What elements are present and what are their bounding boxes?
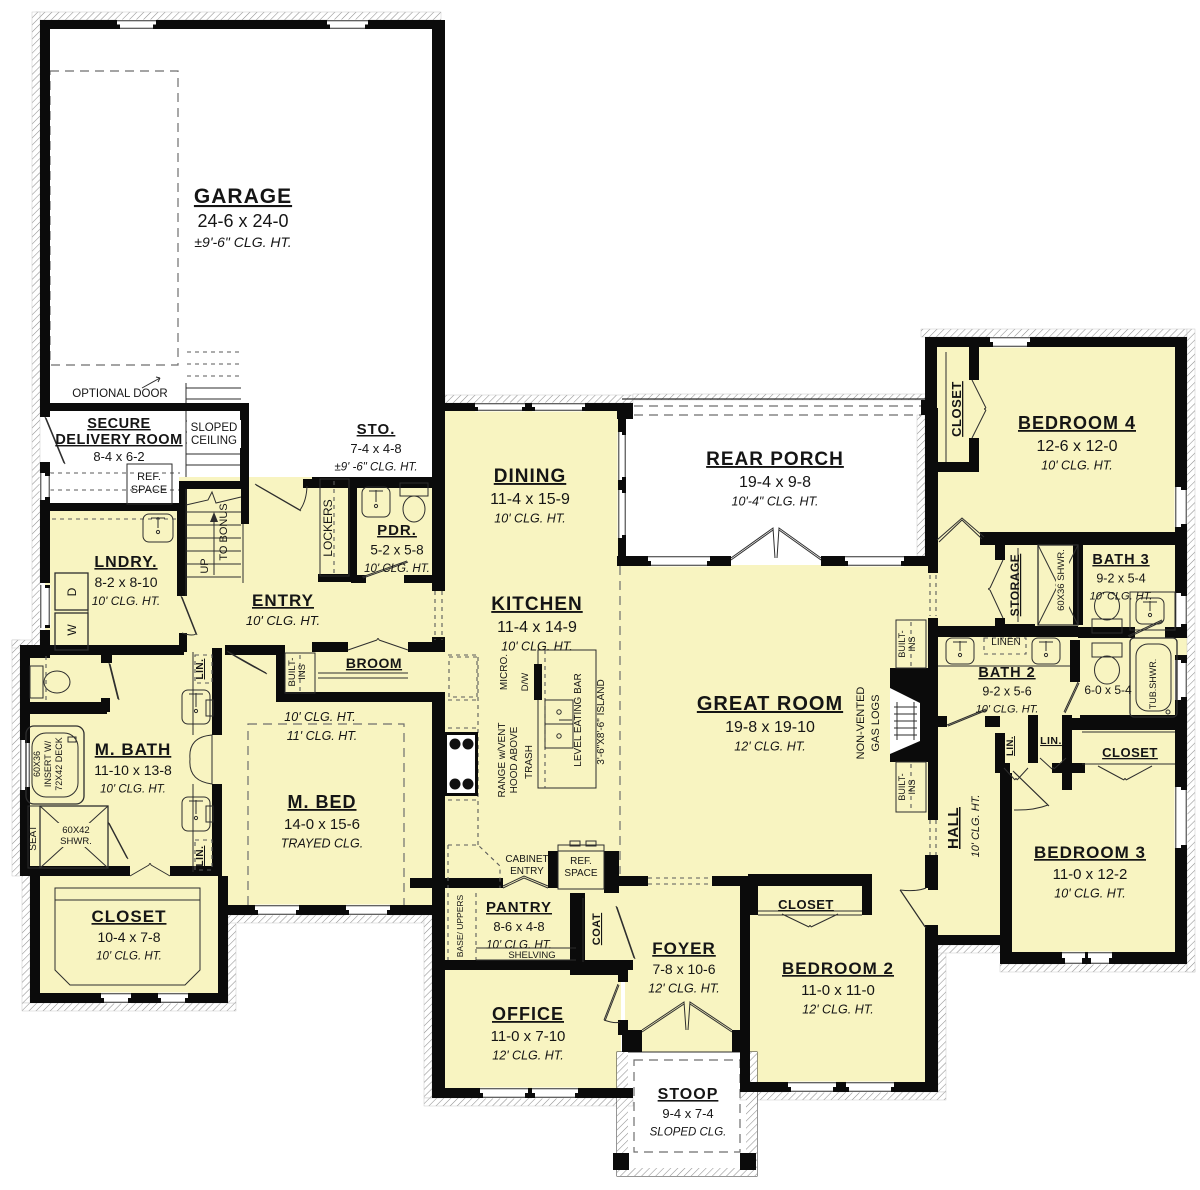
svg-text:±9' -6" CLG. HT.: ±9' -6" CLG. HT. [334,462,417,474]
svg-text:INSERT W/: INSERT W/ [43,740,53,787]
svg-text:BUILT-: BUILT- [897,630,907,657]
svg-text:7-8 x 10-6: 7-8 x 10-6 [652,961,715,977]
svg-text:7-4 x 4-8: 7-4 x 4-8 [350,441,401,456]
svg-text:SLOPED CLG.: SLOPED CLG. [650,1127,727,1139]
svg-text:19-4 x 9-8: 19-4 x 9-8 [739,474,811,491]
svg-text:10' CLG. HT.: 10' CLG. HT. [1041,459,1112,473]
svg-text:11-4 x 15-9: 11-4 x 15-9 [490,491,570,508]
svg-text:10' CLG. HT.: 10' CLG. HT. [1054,887,1125,901]
svg-text:11-10 x 13-8: 11-10 x 13-8 [94,762,172,778]
svg-text:RANGE w/VENT: RANGE w/VENT [497,722,508,797]
svg-text:REF.: REF. [570,856,592,867]
svg-text:10' CLG. HT.: 10' CLG. HT. [970,795,982,858]
svg-text:CABINET: CABINET [505,854,548,865]
svg-text:SLOPED: SLOPED [191,422,238,434]
svg-text:GARAGE: GARAGE [194,185,292,208]
svg-text:OPTIONAL DOOR: OPTIONAL DOOR [72,388,167,400]
svg-text:8-4 x 6-2: 8-4 x 6-2 [93,449,144,464]
svg-text:LIN.: LIN. [1005,736,1016,756]
svg-text:COAT: COAT [591,913,603,945]
svg-text:TO BONUS: TO BONUS [218,503,230,560]
svg-text:SECURE: SECURE [87,416,150,432]
svg-text:72X42 DECK: 72X42 DECK [54,737,64,791]
svg-text:BUILT-: BUILT- [897,773,907,800]
svg-text:BEDROOM 4: BEDROOM 4 [1018,413,1136,433]
svg-text:12-6 x 12-0: 12-6 x 12-0 [1037,438,1118,455]
svg-text:9-4 x 7-4: 9-4 x 7-4 [662,1106,713,1121]
svg-text:SHWR.: SHWR. [60,836,92,847]
svg-text:CLOSET: CLOSET [778,897,834,912]
svg-text:CLOSET: CLOSET [1102,745,1158,760]
svg-text:10' CLG. HT.: 10' CLG. HT. [976,704,1039,716]
svg-text:LOCKERS: LOCKERS [321,499,335,556]
svg-text:10-4 x 7-8: 10-4 x 7-8 [97,929,160,945]
svg-text:60X36 SHWR.: 60X36 SHWR. [1056,549,1067,611]
svg-text:3'-6"X8'-6" ISLAND: 3'-6"X8'-6" ISLAND [596,679,607,764]
svg-text:GREAT ROOM: GREAT ROOM [697,693,843,715]
svg-text:60X42: 60X42 [62,825,89,836]
svg-text:60X36: 60X36 [32,751,42,777]
svg-text:REAR PORCH: REAR PORCH [706,449,844,470]
svg-text:NON-VENTED: NON-VENTED [855,687,867,760]
svg-text:BATH 3: BATH 3 [1092,552,1149,568]
svg-text:ENTRY: ENTRY [252,591,314,610]
svg-text:HALL: HALL [945,807,962,849]
svg-text:10' CLG. HT.: 10' CLG. HT. [284,710,355,724]
svg-text:HOOD ABOVE: HOOD ABOVE [509,726,520,793]
svg-text:M. BED: M. BED [288,792,357,812]
svg-text:8-2 x 8-10: 8-2 x 8-10 [94,574,157,590]
svg-text:GAS LOGS: GAS LOGS [870,695,882,752]
svg-text:9-2 x 5-6: 9-2 x 5-6 [982,685,1031,699]
svg-text:M. BATH: M. BATH [95,740,172,759]
svg-text:SHELVING: SHELVING [508,950,555,961]
svg-text:OFFICE: OFFICE [492,1004,564,1024]
svg-text:CEILING: CEILING [191,435,237,447]
svg-text:24-6 x 24-0: 24-6 x 24-0 [197,211,288,231]
svg-text:5-2 x 5-8: 5-2 x 5-8 [370,543,423,558]
svg-text:LIN.: LIN. [195,659,206,680]
svg-text:D/W: D/W [520,673,531,692]
svg-text:DELIVERY ROOM: DELIVERY ROOM [55,432,182,448]
svg-text:BROOM: BROOM [346,655,402,671]
svg-text:11-0 x 7-10: 11-0 x 7-10 [491,1028,566,1045]
svg-text:BATH 2: BATH 2 [978,665,1035,681]
svg-text:PANTRY: PANTRY [486,899,552,916]
svg-text:TUB.SHWR.: TUB.SHWR. [1148,659,1158,710]
svg-text:STOOP: STOOP [658,1086,719,1103]
svg-text:19-8 x 19-10: 19-8 x 19-10 [725,719,815,736]
svg-text:8-6 x 4-8: 8-6 x 4-8 [493,919,544,934]
svg-text:10' CLG. HT.: 10' CLG. HT. [1090,591,1153,603]
svg-text:UP: UP [199,558,211,573]
svg-text:10' CLG. HT.: 10' CLG. HT. [92,594,161,608]
svg-text:10' CLG. HT.: 10' CLG. HT. [100,784,166,796]
svg-text:10' CLG. HT.: 10' CLG. HT. [494,512,565,526]
svg-text:12' CLG. HT.: 12' CLG. HT. [492,1049,563,1063]
svg-text:KITCHEN: KITCHEN [491,594,582,615]
svg-text:12' CLG. HT.: 12' CLG. HT. [734,740,805,754]
svg-text:SEAT: SEAT [28,825,39,850]
svg-text:LIN.: LIN. [195,846,206,867]
svg-text:LEVEL EATING BAR: LEVEL EATING BAR [573,673,584,766]
svg-text:10' CLG. HT.: 10' CLG. HT. [246,613,320,628]
svg-text:11-0 x 11-0: 11-0 x 11-0 [801,982,875,999]
svg-text:6-0 x 5-4: 6-0 x 5-4 [1084,683,1132,697]
svg-text:SPACE: SPACE [564,868,597,879]
svg-text:PDR.: PDR. [377,522,417,539]
svg-text:FOYER: FOYER [652,939,716,958]
svg-text:TRAYED CLG.: TRAYED CLG. [281,837,363,851]
svg-text:DINING: DINING [494,466,567,487]
svg-text:MICRO.: MICRO. [499,654,510,690]
svg-text:INS: INS [907,636,917,651]
svg-text:CLOSET: CLOSET [949,381,964,437]
svg-text:INS: INS [297,664,308,680]
svg-text:ENTRY: ENTRY [510,866,544,877]
svg-text:STORAGE: STORAGE [1008,554,1022,617]
svg-text:10'-4" CLG. HT.: 10'-4" CLG. HT. [732,495,819,509]
svg-text:12' CLG. HT.: 12' CLG. HT. [802,1003,873,1017]
svg-text:±9'-6" CLG. HT.: ±9'-6" CLG. HT. [194,234,291,250]
svg-text:11' CLG. HT.: 11' CLG. HT. [287,729,357,743]
svg-text:BASE/ UPPERS: BASE/ UPPERS [455,894,465,957]
svg-text:14-0 x 15-6: 14-0 x 15-6 [284,816,360,833]
svg-text:TRASH: TRASH [524,745,535,779]
svg-text:W: W [65,624,79,636]
svg-text:LNDRY.: LNDRY. [94,554,157,571]
svg-text:10' CLG. HT.: 10' CLG. HT. [364,563,430,575]
svg-text:LINEN: LINEN [991,637,1020,648]
svg-text:STO.: STO. [357,421,396,438]
svg-text:REF.: REF. [137,471,161,483]
svg-text:11-0 x 12-2: 11-0 x 12-2 [1053,866,1128,883]
svg-text:BEDROOM 2: BEDROOM 2 [782,959,894,978]
svg-text:12' CLG. HT.: 12' CLG. HT. [648,982,719,996]
svg-text:D: D [65,587,79,596]
svg-text:11-4 x 14-9: 11-4 x 14-9 [497,619,577,636]
svg-text:SPACE: SPACE [131,484,167,496]
svg-text:INS: INS [907,779,917,794]
svg-text:10' CLG. HT.: 10' CLG. HT. [501,640,572,654]
svg-text:9-2 x 5-4: 9-2 x 5-4 [1096,572,1145,586]
svg-text:BEDROOM 3: BEDROOM 3 [1034,843,1146,862]
svg-text:10' CLG. HT.: 10' CLG. HT. [96,951,162,963]
svg-text:LIN.: LIN. [1040,735,1062,747]
svg-text:CLOSET: CLOSET [92,907,167,926]
